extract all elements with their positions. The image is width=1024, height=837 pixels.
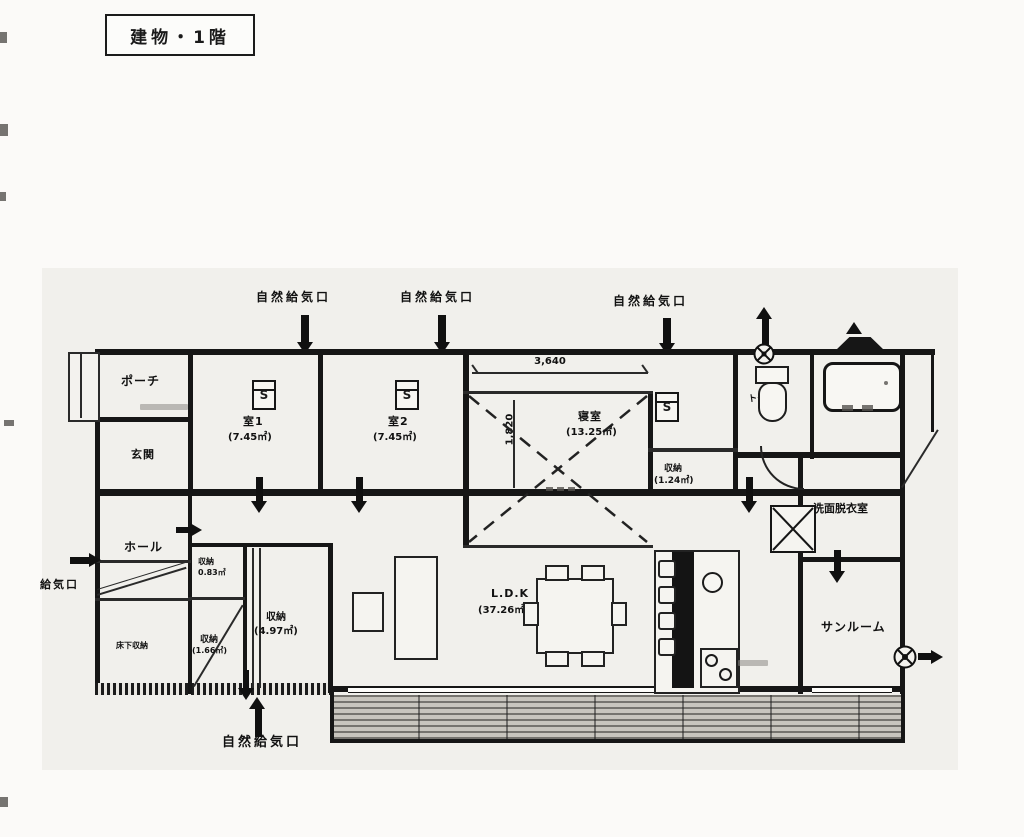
closet497-door-line — [252, 548, 254, 688]
supply-arrow-down-icon — [438, 315, 446, 343]
dining-chair — [581, 565, 605, 581]
room-area-room2: (7.45㎡) — [373, 428, 417, 443]
wall-v1 — [188, 349, 193, 496]
scan-artifact — [0, 797, 8, 807]
kitchen-stool — [658, 586, 676, 604]
washer-cross — [772, 507, 814, 551]
sensor-letter: S — [403, 388, 412, 402]
room-label-room1: 室1 — [243, 413, 264, 429]
exhaust-fan-icon — [753, 343, 775, 365]
dining-chair — [611, 602, 627, 626]
exhaust-arrow-right-icon — [931, 650, 943, 664]
room-area-room1: (7.45㎡) — [228, 428, 272, 443]
drawing-title-box: 建物・1階 — [105, 14, 255, 56]
wall-bottom-hatched — [95, 683, 332, 695]
room-area-storage083: 0.83㎡ — [198, 567, 226, 578]
vent-label-top-2: 自然給気口 — [400, 288, 475, 305]
wall-toilet-bath — [810, 349, 814, 459]
sensor-letter: S — [260, 388, 269, 402]
vent-label-bottom: 自然給気口 — [222, 731, 302, 750]
kitchen-sink-icon — [702, 572, 723, 593]
room-area-storage166: (1.66㎡) — [192, 645, 227, 656]
stove-burner — [705, 654, 718, 667]
deck-edge-left — [330, 690, 334, 740]
airflow-arrow-down-icon — [238, 688, 254, 700]
room-label-storage083: 収納 — [198, 556, 214, 567]
room-label-washroom: 洗面脱衣室 — [813, 500, 868, 516]
room-area-bedroom: (13.25㎡) — [566, 423, 617, 438]
wall-closet124-top — [648, 448, 738, 452]
stove-icon — [700, 648, 738, 688]
airflow-arrow-down-icon — [356, 477, 363, 503]
airflow-arrow-down-icon — [351, 501, 367, 513]
airflow-arrow-down-icon — [251, 501, 267, 513]
bedroom-cross-marks — [466, 393, 650, 545]
vent-label-left: 給気口 — [40, 576, 79, 592]
room-label-porch: ポーチ — [121, 372, 160, 389]
sensor-symbol: S — [395, 380, 419, 410]
illegible-marks — [557, 487, 564, 491]
airflow-arrow-right-icon — [190, 523, 202, 537]
scan-artifact — [0, 192, 6, 201]
wall-porch-entry — [95, 417, 193, 422]
room-label-bedroom: 寝室 — [578, 408, 602, 424]
airflow-arrow-down-icon — [829, 571, 845, 583]
illegible-text — [738, 660, 768, 666]
wall-v2 — [318, 349, 323, 496]
scan-artifact — [0, 124, 8, 136]
wall-h-bedroom-bottom — [463, 545, 653, 548]
window-sunroom-south — [812, 687, 892, 693]
window-ldk-south — [348, 687, 676, 693]
exhaust-arrow-right-icon — [918, 653, 932, 660]
airflow-arrow-down-icon — [256, 477, 263, 503]
bathtub-drain — [884, 381, 888, 385]
wood-deck — [330, 695, 905, 743]
floorplan-page: 建物・1階 自然給気口 自然給気口 自然給気口 — [0, 0, 1024, 837]
bath-step-mark — [842, 405, 853, 411]
wall-h-washroom-top — [733, 452, 905, 458]
supply-arrow-right-icon — [70, 557, 90, 564]
room-label-ldk: L.D.K — [491, 587, 529, 600]
airflow-arrow-down-icon — [243, 670, 249, 690]
room-label-room2: 室2 — [388, 413, 409, 429]
wall-hall-bottom — [95, 560, 191, 563]
scan-artifact — [0, 32, 7, 43]
vent-label-top-3: 自然給気口 — [613, 292, 688, 309]
washer-pan-icon — [770, 505, 816, 553]
kitchen-stool — [658, 612, 676, 630]
kitchen-stool — [658, 560, 676, 578]
supply-arrow-down-icon — [663, 318, 671, 344]
room-label-storage497: 収納 — [266, 608, 286, 623]
room-label-storage166: 収納 — [200, 632, 218, 645]
wall-v5 — [733, 349, 738, 496]
dimension-line-h — [472, 372, 648, 374]
wall-right-ext — [931, 352, 934, 432]
wall-storage083-bottom — [188, 597, 245, 600]
airflow-arrow-down-icon — [746, 477, 753, 503]
illegible-marks — [546, 487, 553, 491]
porch-step-line — [80, 352, 82, 418]
wall-ldk-left — [328, 543, 333, 693]
vent-label-top-1: 自然給気口 — [256, 288, 331, 305]
dining-chair — [581, 651, 605, 667]
room-label-sunroom: サンルーム — [821, 618, 886, 635]
toilet-bowl-icon — [758, 382, 787, 422]
kitchen-stool — [658, 638, 676, 656]
dining-chair — [523, 602, 539, 626]
wall-top — [95, 349, 935, 355]
illegible-text — [140, 404, 188, 410]
scan-artifact — [4, 420, 14, 426]
wall-slope-bottom — [95, 598, 191, 601]
furniture-small — [352, 592, 384, 632]
room-label-underfloor: 床下収納 — [116, 640, 148, 651]
drawing-title: 建物・1階 — [130, 23, 230, 48]
airflow-arrow-down-icon — [741, 501, 757, 513]
furniture-cabinet — [394, 556, 438, 660]
exhaust-arrow-up-icon — [846, 322, 862, 334]
airflow-arrow-down-icon — [834, 550, 841, 573]
exhaust-arrow-up-icon — [762, 319, 769, 346]
stove-burner — [719, 668, 732, 681]
sensor-symbol: S — [252, 380, 276, 410]
supply-arrow-down-icon — [301, 315, 309, 343]
room-area-storage497: (4.97㎡) — [254, 622, 298, 637]
wall-storage-top — [188, 543, 333, 547]
dining-chair — [545, 651, 569, 667]
room-label-entrance: 玄関 — [131, 446, 155, 462]
dimension-horizontal: 3,640 — [520, 356, 580, 367]
supply-arrow-right-icon — [89, 553, 101, 567]
exhaust-fan-icon — [893, 645, 917, 669]
dining-table — [536, 578, 614, 654]
bath-step-mark — [862, 405, 873, 411]
room-label-hall: ホール — [124, 538, 163, 555]
dining-chair — [545, 565, 569, 581]
wall-hall-right — [188, 489, 192, 694]
room-area-closet124: (1.24㎡) — [654, 473, 693, 486]
closet497-door-line — [259, 548, 261, 688]
illegible-marks — [568, 487, 575, 491]
porch-step — [68, 352, 100, 422]
deck-edge-right — [901, 690, 905, 740]
sensor-symbol: S — [655, 392, 679, 422]
sensor-letter: S — [663, 400, 672, 414]
exhaust-arrow-up-icon — [756, 307, 772, 319]
wall-h-sunroom-top — [798, 557, 905, 562]
airflow-arrow-right-icon — [176, 527, 191, 533]
room-area-ldk: (37.26㎡) — [478, 601, 529, 616]
